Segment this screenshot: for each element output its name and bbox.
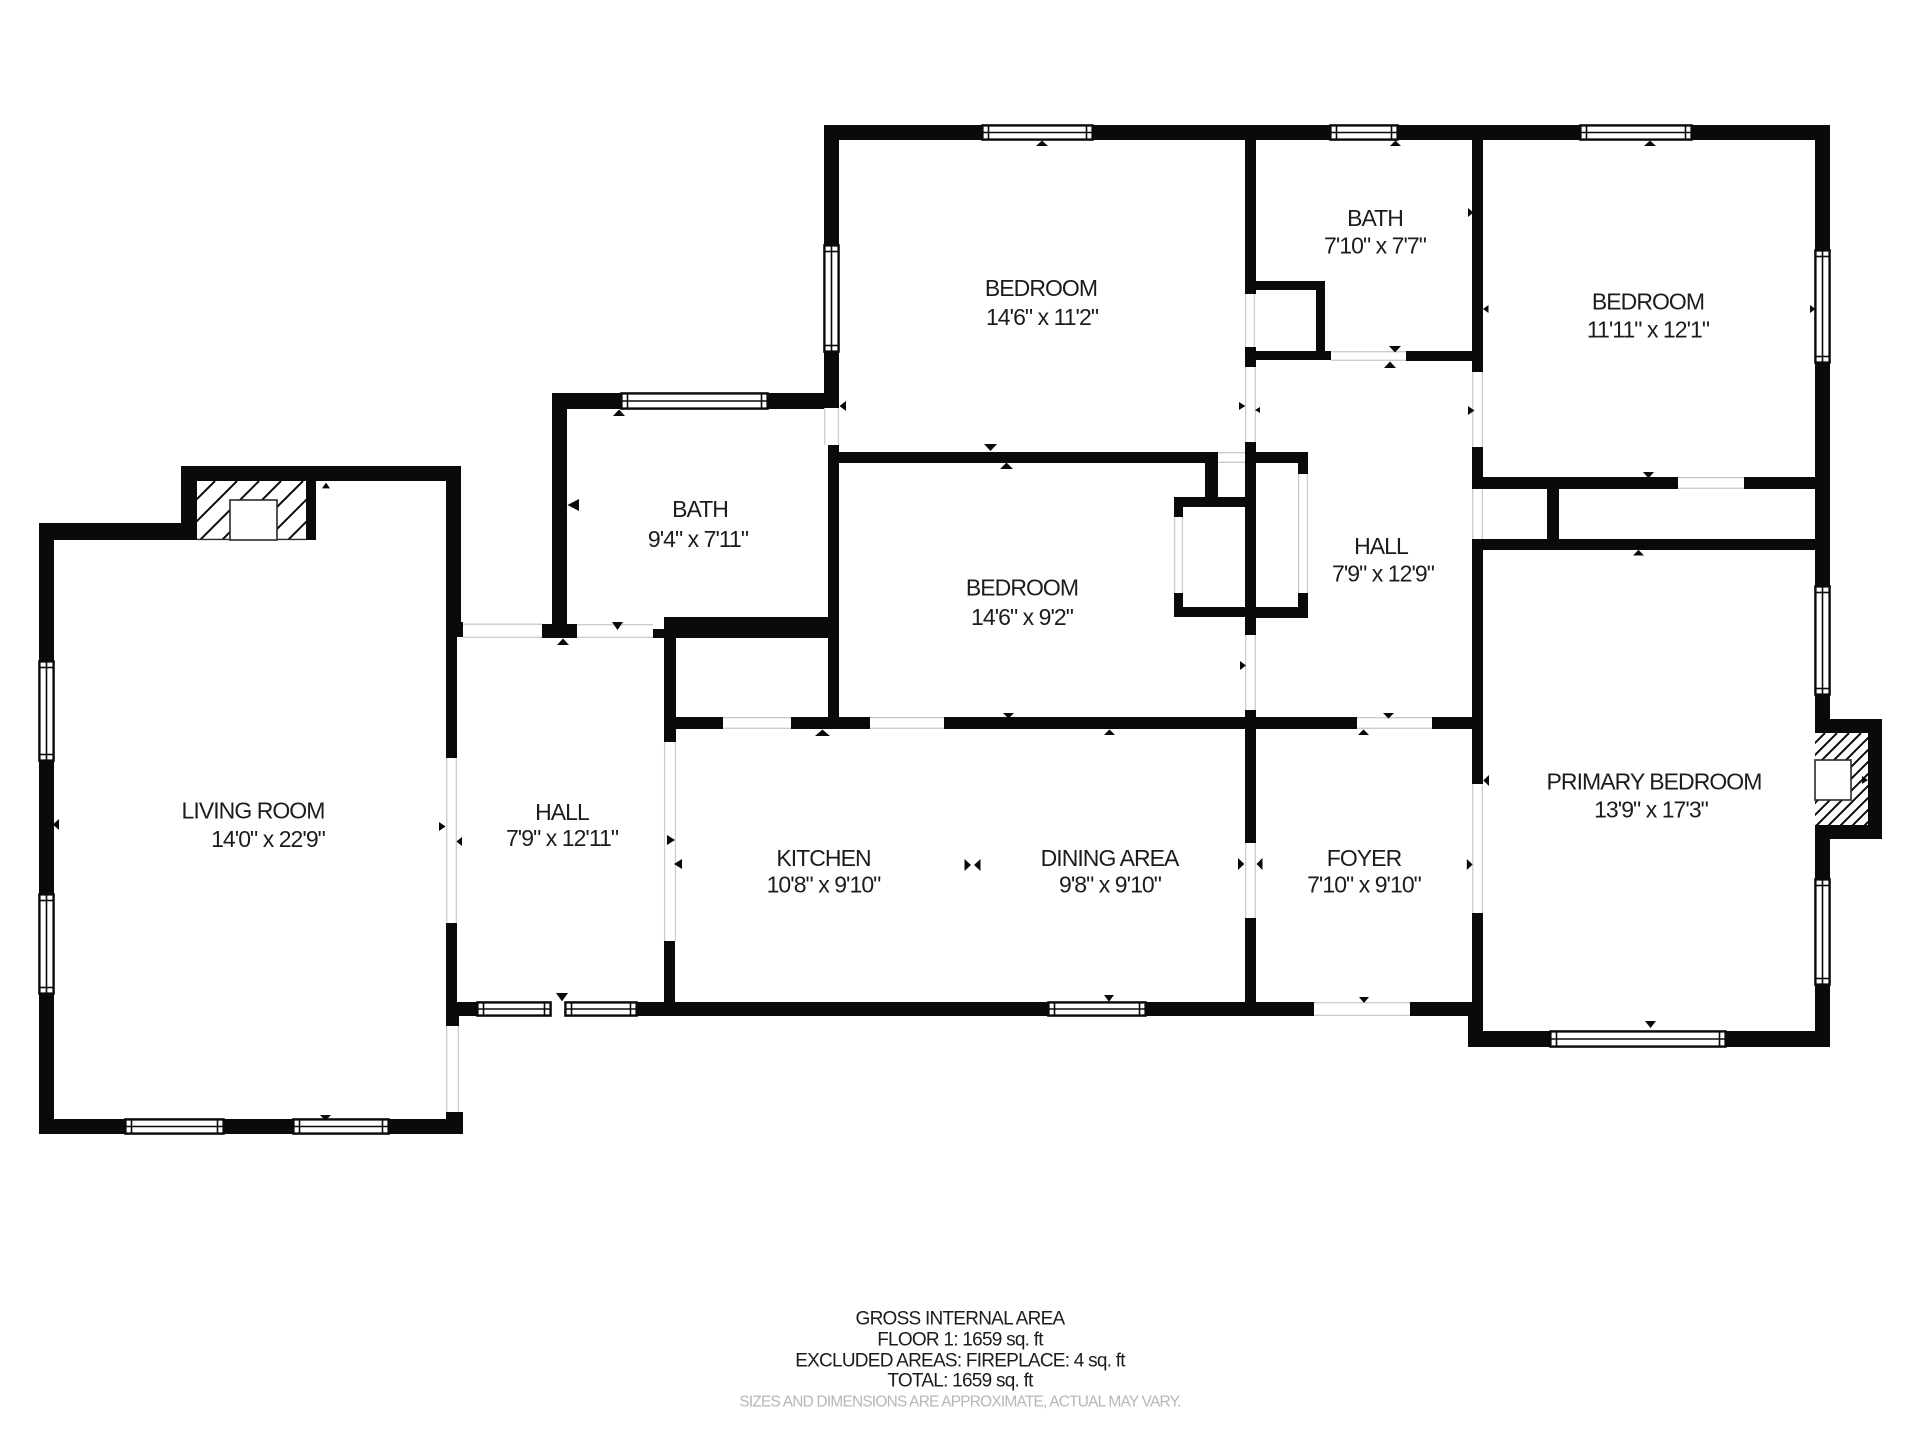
svg-text:7'10" x 7'7": 7'10" x 7'7" xyxy=(1324,233,1427,259)
svg-text:LIVING ROOM: LIVING ROOM xyxy=(182,798,325,824)
svg-text:HALL: HALL xyxy=(535,799,590,825)
svg-text:7'9" x 12'11": 7'9" x 12'11" xyxy=(506,825,619,851)
svg-text:SIZES AND DIMENSIONS ARE APPRO: SIZES AND DIMENSIONS ARE APPROXIMATE, AC… xyxy=(739,1394,1180,1411)
svg-text:13'9" x 17'3": 13'9" x 17'3" xyxy=(1594,797,1709,823)
svg-text:PRIMARY BEDROOM: PRIMARY BEDROOM xyxy=(1547,769,1762,795)
svg-text:GROSS INTERNAL AREA: GROSS INTERNAL AREA xyxy=(856,1308,1066,1329)
svg-text:14'6" x 9'2": 14'6" x 9'2" xyxy=(971,604,1074,630)
svg-text:EXCLUDED AREAS: FIREPLACE: 4 s: EXCLUDED AREAS: FIREPLACE: 4 sq. ft xyxy=(795,1351,1126,1372)
svg-text:BEDROOM: BEDROOM xyxy=(966,575,1078,601)
svg-text:BATH: BATH xyxy=(672,496,728,522)
svg-text:BATH: BATH xyxy=(1347,205,1403,231)
svg-text:7'9" x 12'9": 7'9" x 12'9" xyxy=(1332,561,1435,587)
svg-text:KITCHEN: KITCHEN xyxy=(776,845,870,871)
svg-text:FLOOR 1: 1659 sq. ft: FLOOR 1: 1659 sq. ft xyxy=(877,1330,1044,1351)
svg-text:BEDROOM: BEDROOM xyxy=(1592,289,1704,315)
svg-text:FOYER: FOYER xyxy=(1327,845,1402,871)
svg-text:14'6" x 11'2": 14'6" x 11'2" xyxy=(986,304,1099,330)
svg-text:9'4" x 7'11": 9'4" x 7'11" xyxy=(648,526,749,552)
svg-text:DINING AREA: DINING AREA xyxy=(1041,845,1180,871)
svg-text:BEDROOM: BEDROOM xyxy=(985,275,1097,301)
svg-text:9'8" x 9'10": 9'8" x 9'10" xyxy=(1059,872,1162,898)
svg-text:14'0" x 22'9": 14'0" x 22'9" xyxy=(211,826,326,852)
svg-text:11'11" x 12'1": 11'11" x 12'1" xyxy=(1587,317,1710,343)
svg-text:7'10" x 9'10": 7'10" x 9'10" xyxy=(1307,872,1422,898)
svg-text:TOTAL: 1659 sq. ft: TOTAL: 1659 sq. ft xyxy=(887,1370,1034,1391)
svg-text:10'8" x 9'10": 10'8" x 9'10" xyxy=(767,872,882,898)
svg-text:HALL: HALL xyxy=(1354,533,1409,559)
